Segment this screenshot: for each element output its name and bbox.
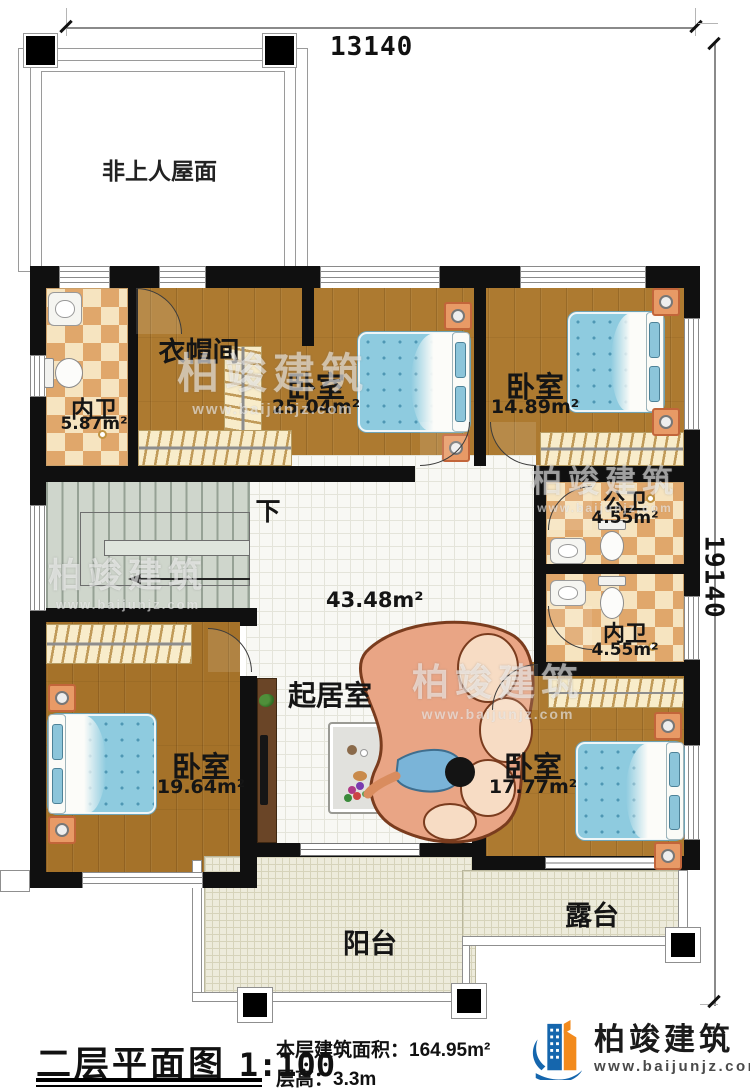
bed	[48, 714, 156, 814]
floor-area-value: 164.95m²	[409, 1040, 490, 1061]
wall-segment	[46, 466, 415, 482]
wardrobe-rack	[548, 678, 684, 708]
floor-height-value: 3.3m	[333, 1069, 376, 1088]
nightstand	[652, 408, 680, 436]
room-label: 阳台	[322, 922, 418, 961]
window	[684, 318, 700, 430]
nightstand	[48, 684, 76, 712]
window	[30, 505, 46, 611]
window	[684, 596, 700, 660]
sofa	[338, 610, 548, 846]
terrace-column	[666, 928, 700, 962]
nightstand	[654, 712, 682, 740]
bed	[358, 332, 470, 432]
room-label: 起居室	[272, 674, 388, 714]
nightstand	[48, 816, 76, 844]
wardrobe-rack	[46, 624, 192, 664]
room-area: 5.87m²	[44, 414, 144, 434]
stair-handrail	[104, 540, 250, 556]
room-area: 4.55m²	[582, 508, 668, 528]
nightstand	[652, 288, 680, 316]
wall-segment	[542, 662, 700, 676]
terrace-railing	[462, 936, 686, 946]
wall-segment	[474, 288, 486, 466]
balcony-railing	[192, 992, 470, 1002]
balcony-column	[238, 988, 272, 1022]
wall-segment	[30, 608, 256, 622]
room-area: 4.55m²	[582, 640, 668, 660]
lamp-icon	[661, 849, 675, 863]
brand-logo: 柏竣建筑 www.baijunjz.com	[528, 1018, 750, 1080]
window	[82, 872, 203, 888]
stairs-down-label: 下	[250, 492, 286, 528]
window	[320, 266, 440, 288]
brand-logo-icon	[528, 1018, 586, 1080]
window	[159, 266, 206, 288]
room-area: 43.48m²	[326, 588, 422, 612]
sink	[550, 580, 586, 606]
wall-segment	[240, 608, 257, 626]
floor-plan-canvas: 13140 19140 非上人屋面	[0, 0, 750, 1088]
lamp-icon	[659, 415, 673, 429]
top-dimension-line	[66, 27, 696, 29]
balcony-column	[452, 984, 486, 1018]
plan-info: 本层建筑面积：164.95m² 层高：3.3m	[276, 1036, 490, 1088]
lamp-icon	[659, 295, 673, 309]
wardrobe-rack	[138, 430, 292, 466]
right-dimension-label: 19140	[699, 535, 729, 618]
side-ledge	[0, 870, 30, 892]
floor-area-line: 本层建筑面积：164.95m²	[276, 1036, 490, 1065]
stair-direction-arrow	[128, 574, 141, 584]
tv	[260, 735, 268, 805]
wall-segment	[302, 288, 314, 346]
sink	[550, 538, 586, 564]
top-dimension-label: 13140	[330, 32, 413, 62]
room-label: 衣帽间	[134, 330, 264, 369]
lamp-icon	[55, 823, 69, 837]
room-area: 14.89m²	[482, 396, 588, 418]
lamp-icon	[661, 719, 675, 733]
lamp-icon	[451, 309, 465, 323]
wall-segment	[534, 564, 684, 574]
toilet	[44, 356, 84, 390]
room-area: 25.04m²	[262, 396, 370, 418]
lamp-icon	[55, 691, 69, 705]
stair-direction-line	[140, 578, 250, 580]
brand-name: 柏竣建筑	[594, 1024, 750, 1055]
room-label: 露台	[544, 894, 640, 933]
room-area: 19.64m²	[148, 776, 254, 798]
nightstand	[654, 842, 682, 870]
extension-line	[695, 8, 696, 36]
window	[520, 266, 646, 288]
floor-height-label: 层高：	[276, 1069, 333, 1088]
wardrobe-rack	[540, 432, 684, 466]
extension-line	[698, 23, 718, 24]
roof-column	[24, 34, 57, 67]
brand-url: www.baijunjz.com	[594, 1058, 750, 1075]
sink	[48, 292, 82, 326]
roof-label: 非上人屋面	[102, 152, 217, 186]
floor-height-line: 层高：3.3m	[276, 1065, 490, 1088]
brand-text: 柏竣建筑 www.baijunjz.com	[594, 1024, 750, 1075]
bed	[576, 742, 684, 840]
window	[684, 745, 700, 840]
title-underline	[36, 1078, 262, 1082]
wall-segment	[535, 466, 684, 482]
terrace-sliding-door	[545, 857, 657, 869]
title-underline	[36, 1085, 262, 1087]
right-dimension-line	[714, 44, 716, 1006]
roof-column	[263, 34, 296, 67]
floor-area-label: 本层建筑面积：	[276, 1040, 409, 1061]
nightstand	[444, 302, 472, 330]
window	[59, 266, 110, 288]
toilet	[596, 576, 628, 620]
room-area: 17.77m²	[480, 776, 586, 798]
